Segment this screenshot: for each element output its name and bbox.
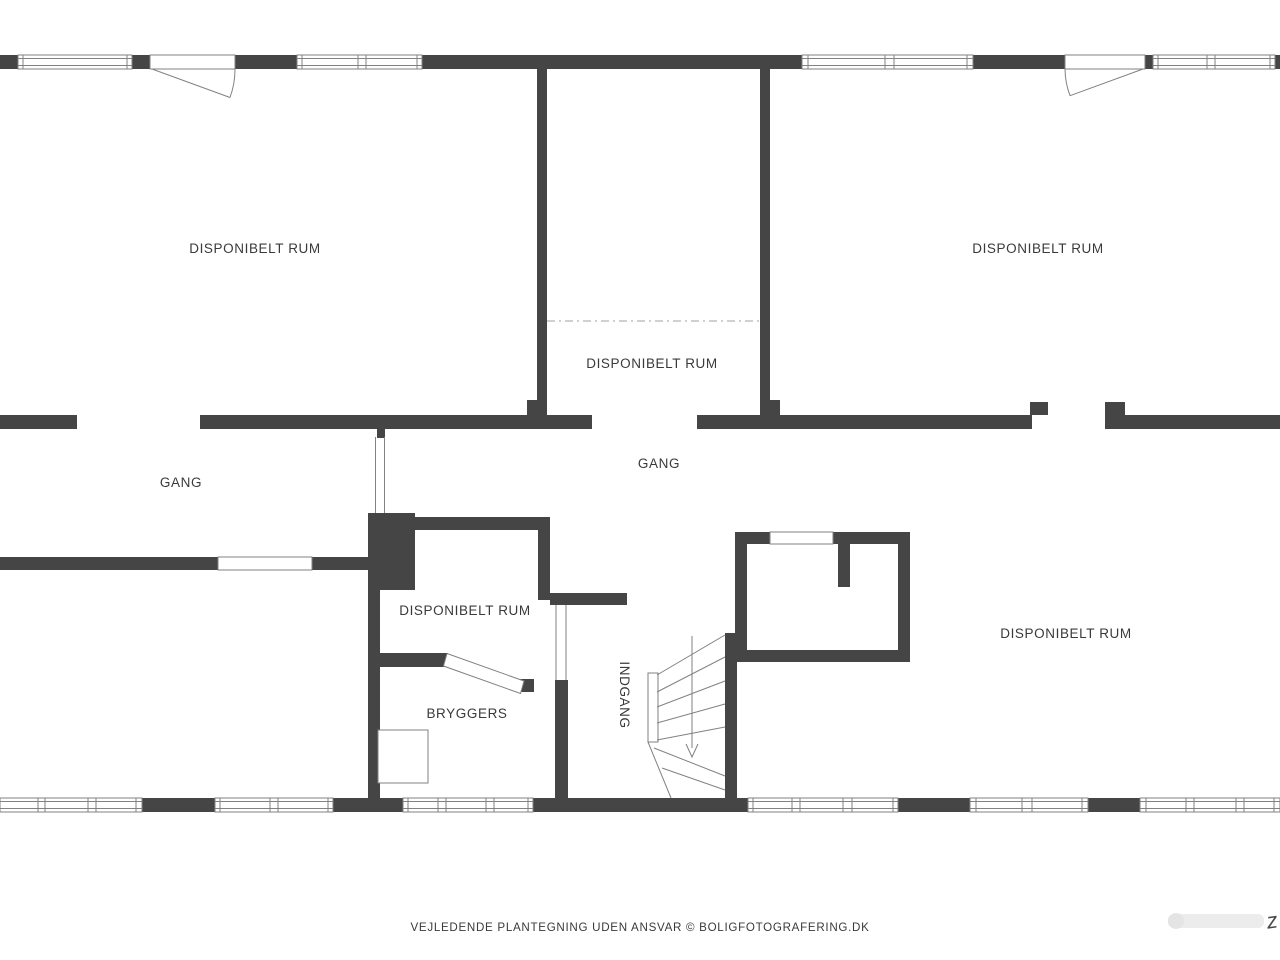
stair-tread <box>657 704 725 723</box>
room-label-top-middle: DISPONIBELT RUM <box>586 356 718 371</box>
wall-segment <box>1145 55 1153 69</box>
wall-segment <box>697 415 1032 429</box>
floor-plan: DISPONIBELT RUM DISPONIBELT RUM DISPONIB… <box>0 0 1280 960</box>
room-label-hall-right: GANG <box>638 456 680 471</box>
wall-segment <box>1105 415 1280 429</box>
fixture-box <box>378 730 428 783</box>
room-label-middle: DISPONIBELT RUM <box>399 603 531 618</box>
room-label-utility: BRYGGERS <box>426 706 507 721</box>
wall-segment <box>538 530 550 600</box>
wall-block <box>368 513 415 590</box>
wall-segment <box>380 653 448 667</box>
wall-segment <box>235 55 297 69</box>
stair-tread <box>657 657 725 692</box>
interior-opening <box>770 532 833 544</box>
staircase <box>648 635 725 798</box>
wall-segment <box>0 557 218 570</box>
wall-segment <box>422 55 802 69</box>
room-label-top-left: DISPONIBELT RUM <box>189 241 321 256</box>
wall-segment <box>898 798 970 812</box>
stair-tread <box>657 727 725 740</box>
wall-stub <box>838 544 850 587</box>
stair-entry-door <box>648 673 658 742</box>
wall-segment <box>747 650 910 662</box>
wall-segment <box>312 557 370 570</box>
window <box>970 798 1088 812</box>
window <box>18 55 132 69</box>
watermark-logo <box>1168 913 1264 929</box>
room-label-entrance: INDGANG <box>617 661 632 728</box>
linework <box>0 55 1280 812</box>
wall-foot <box>1030 402 1048 415</box>
wall-segment <box>898 532 910 662</box>
door-leaf <box>1070 69 1143 96</box>
wall-foot <box>1105 402 1125 415</box>
watermark-signature: z <box>1264 907 1279 933</box>
window <box>802 55 973 69</box>
window <box>1140 798 1280 812</box>
wall-segment <box>132 55 150 69</box>
wall-segment <box>200 415 592 429</box>
door-swing <box>150 55 235 98</box>
labels: DISPONIBELT RUM DISPONIBELT RUM DISPONIB… <box>160 241 1279 934</box>
window <box>748 798 898 812</box>
stair-tread <box>662 768 725 790</box>
wall-segment <box>735 532 770 544</box>
walls <box>0 55 1280 812</box>
wall-segment <box>1088 798 1140 812</box>
wall-segment <box>725 633 737 798</box>
wall-segment <box>0 415 77 429</box>
wall-segment <box>973 55 1065 69</box>
room-label-bottom-right: DISPONIBELT RUM <box>1000 626 1132 641</box>
window <box>0 798 142 812</box>
window <box>215 798 333 812</box>
wall-segment <box>533 798 748 812</box>
window <box>1153 55 1275 69</box>
room-label-hall-left: GANG <box>160 475 202 490</box>
wall-segment <box>555 680 568 798</box>
wall-segment <box>333 798 403 812</box>
opening-marker <box>376 437 385 513</box>
door-swing <box>1065 55 1145 96</box>
stair-tread <box>657 681 725 707</box>
wall-segment <box>0 55 18 69</box>
interior-window <box>218 557 312 570</box>
footer-disclaimer: VEJLEDENDE PLANTEGNING UDEN ANSVAR © BOL… <box>410 921 869 934</box>
wall-segment <box>1275 55 1280 69</box>
window <box>403 798 533 812</box>
wall-segment <box>415 517 550 530</box>
wall-segment <box>760 69 770 417</box>
door-arc <box>1065 69 1070 96</box>
stair-tread <box>657 635 725 675</box>
door-leaf <box>152 69 230 98</box>
wall-stub <box>377 429 385 438</box>
opening-marker <box>556 605 566 680</box>
wall-segment <box>142 798 215 812</box>
door-diagonal <box>444 654 525 694</box>
window <box>297 55 422 69</box>
door-arc <box>230 69 235 98</box>
wall-segment <box>537 69 547 417</box>
wall-segment <box>550 593 627 605</box>
room-label-top-right: DISPONIBELT RUM <box>972 241 1104 256</box>
